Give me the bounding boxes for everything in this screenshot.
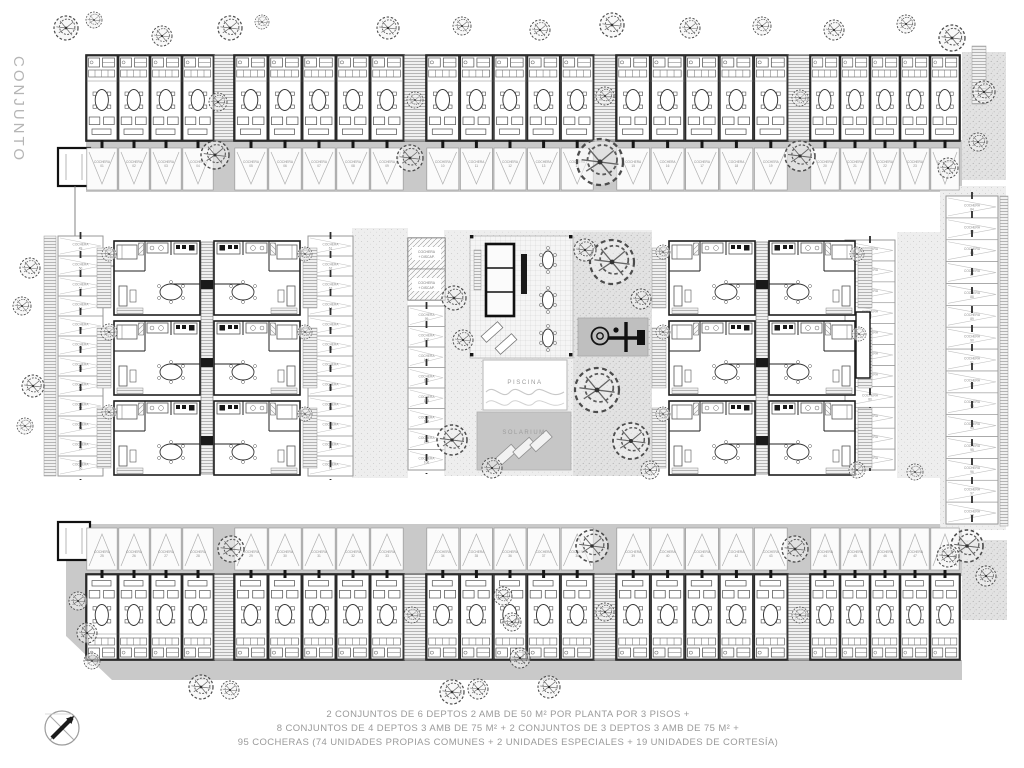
tree-icon xyxy=(201,141,229,169)
stall-bollard xyxy=(542,570,545,578)
apartment-unit xyxy=(269,56,302,141)
stall-bollard xyxy=(250,570,253,578)
stall-bollard xyxy=(475,140,478,148)
tree-icon xyxy=(440,680,464,704)
stall-bollard xyxy=(824,140,827,148)
apartment-unit xyxy=(811,575,840,660)
tree-icon xyxy=(596,87,614,105)
stall-bollard xyxy=(284,570,287,578)
stall-number: 20 xyxy=(823,164,827,168)
driveway-left xyxy=(352,228,408,478)
apartment-unit xyxy=(183,56,214,141)
stall-bollard xyxy=(944,140,947,148)
stall-bollard xyxy=(318,570,321,578)
apartment-unit xyxy=(841,575,870,660)
tree-icon xyxy=(600,13,624,37)
apartment-unit xyxy=(235,575,268,660)
caption-line-3: 95 COCHERAS (74 UNIDADES PROPIAS COMUNES… xyxy=(238,737,778,748)
apartment-module xyxy=(769,401,855,475)
stair-strip xyxy=(214,574,234,660)
stall-number: 39 xyxy=(631,554,635,558)
apartment-unit xyxy=(754,56,787,141)
tree-icon xyxy=(907,464,923,480)
stall-number: 40 xyxy=(666,554,670,558)
apartment-unit xyxy=(901,575,930,660)
tree-icon xyxy=(850,247,864,261)
stall-bollard xyxy=(441,570,444,578)
stall-number: 90 xyxy=(970,339,974,343)
tree-icon xyxy=(255,15,269,29)
corridor-landing xyxy=(201,358,213,367)
tree-icon xyxy=(298,247,312,261)
stall-number: 42 xyxy=(735,554,739,558)
stall-bollard xyxy=(165,140,168,148)
stall-number: 41 xyxy=(700,554,704,558)
stall-bollard xyxy=(632,140,635,148)
tree-icon xyxy=(575,368,619,412)
apartment-unit xyxy=(371,56,404,141)
apartment-unit xyxy=(754,575,787,660)
tree-icon xyxy=(407,92,423,108)
stall-bollard xyxy=(197,570,200,578)
caption-line-2: 8 CONJUNTOS DE 4 DEPTOS 3 AMB DE 75 M² +… xyxy=(277,723,740,734)
stall-number: 02 xyxy=(132,164,136,168)
stall-number: 17 xyxy=(700,164,704,168)
tree-icon xyxy=(102,405,116,419)
deck-post xyxy=(569,353,572,356)
stall-bollard xyxy=(914,140,917,148)
stall-number: 21 xyxy=(853,164,857,168)
pergola-strip xyxy=(44,236,56,476)
apartment-unit xyxy=(460,575,492,660)
tree-icon xyxy=(973,81,995,103)
tree-icon xyxy=(782,536,808,562)
apartment-unit xyxy=(811,56,840,141)
tree-icon xyxy=(852,327,866,341)
apartment-module xyxy=(214,321,300,395)
stall-number: 44 xyxy=(823,554,827,558)
apartment-extension xyxy=(856,312,870,378)
stall-number: 37 xyxy=(542,554,546,558)
apartment-unit xyxy=(87,575,118,660)
stall-number: 43 xyxy=(769,554,773,558)
apartment-unit xyxy=(119,56,150,141)
stall-bollard xyxy=(197,140,200,148)
tree-icon xyxy=(437,425,467,455)
stall-number: 95 xyxy=(970,448,974,452)
tree-icon xyxy=(453,17,471,35)
stall-number: 30 xyxy=(283,554,287,558)
apartment-unit xyxy=(617,575,650,660)
caption-line-1: 2 CONJUNTOS DE 6 DEPTOS 2 AMB DE 50 M² P… xyxy=(326,709,689,720)
apartment-module xyxy=(114,401,200,475)
apartment-unit xyxy=(617,56,650,141)
apartment-unit xyxy=(427,56,459,141)
apartment-unit xyxy=(841,56,870,141)
stall-number: 89 xyxy=(970,317,974,321)
tree-icon xyxy=(577,139,623,185)
tree-icon xyxy=(468,679,488,699)
tree-icon xyxy=(849,462,865,478)
apartment-unit xyxy=(337,56,370,141)
tree-icon xyxy=(397,145,423,171)
tree-icon xyxy=(596,603,614,621)
apartment-module xyxy=(214,241,300,315)
stall-bollard xyxy=(854,570,857,578)
stall-number: 49 xyxy=(79,247,83,251)
stall-number: 47 xyxy=(913,554,917,558)
stall-number: 45 xyxy=(853,554,857,558)
tree-icon xyxy=(897,15,915,33)
tree-icon xyxy=(792,607,808,623)
tree-icon xyxy=(503,613,521,631)
patio-table xyxy=(543,251,554,269)
apartment-unit xyxy=(686,575,719,660)
stall-bollard xyxy=(133,570,136,578)
stall-bollard xyxy=(475,570,478,578)
deck-post xyxy=(470,235,473,238)
tree-icon xyxy=(453,330,473,350)
corridor-landing xyxy=(201,436,213,445)
stall-number: 12 xyxy=(508,164,512,168)
apartment-unit xyxy=(561,56,593,141)
stall-number: 05 xyxy=(249,164,253,168)
tree-icon xyxy=(631,289,651,309)
stall-bollard xyxy=(666,570,669,578)
stall-number: 10 xyxy=(441,164,445,168)
special-stall-label: COCHERA xyxy=(418,250,436,254)
stall-bollard xyxy=(884,140,887,148)
stall-bollard xyxy=(576,140,579,148)
tree-icon xyxy=(218,536,244,562)
patio-table xyxy=(543,329,554,347)
apartment-module xyxy=(214,401,300,475)
tree-icon xyxy=(377,17,399,39)
tree-icon xyxy=(13,297,31,315)
site-plan: COCHERA01COCHERA02COCHERA03COCHERA04COCH… xyxy=(0,0,1024,768)
tree-icon xyxy=(482,458,502,478)
corridor-landing xyxy=(756,280,768,289)
stall-bollard xyxy=(441,140,444,148)
stall-number: 96 xyxy=(970,470,974,474)
site-title-vertical: CONJUNTO xyxy=(10,56,27,163)
tree-icon xyxy=(218,16,242,40)
tree-icon xyxy=(680,18,700,38)
stall-bollard xyxy=(576,570,579,578)
stall-bollard xyxy=(386,570,389,578)
stall-number: 34 xyxy=(441,554,445,558)
stall-bollard xyxy=(352,140,355,148)
stall-bollard xyxy=(509,140,512,148)
tree-icon xyxy=(442,286,466,310)
apartment-unit xyxy=(183,575,214,660)
stall-number: 27 xyxy=(164,554,168,558)
apartment-unit xyxy=(87,56,118,141)
apartment-module xyxy=(769,321,855,395)
tree-icon xyxy=(84,653,100,669)
stall-number: 22 xyxy=(883,164,887,168)
stall-bollard xyxy=(101,570,104,578)
stall-number: 19 xyxy=(769,164,773,168)
stall-number: 18 xyxy=(735,164,739,168)
pergola-strip xyxy=(858,408,872,468)
stall-number: 23 xyxy=(913,164,917,168)
apartment-unit xyxy=(901,56,930,141)
stall-number: 31 xyxy=(317,554,321,558)
stall-bollard xyxy=(701,140,704,148)
tree-icon xyxy=(785,141,815,171)
stall-number: 09 xyxy=(385,164,389,168)
pool-label: PISCINA xyxy=(507,379,542,386)
tree-icon xyxy=(969,133,987,151)
tree-icon xyxy=(656,245,670,259)
tree-icon xyxy=(753,17,771,35)
stall-bollard xyxy=(735,140,738,148)
tree-icon xyxy=(54,16,78,40)
apartment-unit xyxy=(686,56,719,141)
stall-number: 03 xyxy=(164,164,168,168)
tree-icon xyxy=(792,90,808,106)
tree-icon xyxy=(298,325,312,339)
apartment-unit xyxy=(235,56,268,141)
stall-bollard xyxy=(824,570,827,578)
stall-number: 04 xyxy=(196,164,200,168)
apartment-unit xyxy=(337,575,370,660)
tree-icon xyxy=(17,418,33,434)
stall-number: 25 xyxy=(100,554,104,558)
sum-building xyxy=(486,244,514,316)
stall-number: 84 xyxy=(970,207,974,211)
deck-post xyxy=(470,353,473,356)
stall-number: 61 xyxy=(329,247,333,251)
stall-number: 11 xyxy=(475,164,479,168)
stall-number: 07 xyxy=(317,164,321,168)
apartment-unit xyxy=(871,575,900,660)
guard-box xyxy=(58,522,90,560)
special-stall-label: + DISCAP. xyxy=(418,255,434,259)
tree-icon xyxy=(298,407,312,421)
tree-icon xyxy=(656,407,670,421)
tree-icon xyxy=(494,587,512,605)
stall-bollard xyxy=(884,570,887,578)
apartment-unit xyxy=(460,56,492,141)
stall-bollard xyxy=(701,570,704,578)
apartment-unit xyxy=(561,575,593,660)
stall-bollard xyxy=(914,570,917,578)
tree-icon xyxy=(510,648,530,668)
apartment-unit xyxy=(528,575,560,660)
play-slide xyxy=(637,330,645,345)
tree-icon xyxy=(538,676,560,698)
apartment-unit xyxy=(651,575,684,660)
apartment-unit xyxy=(931,56,960,141)
stall-bollard xyxy=(632,570,635,578)
tree-icon xyxy=(152,26,172,46)
tree-icon xyxy=(976,566,996,586)
stall-number: 01 xyxy=(100,164,104,168)
tree-icon xyxy=(189,675,213,699)
stall-number: 26 xyxy=(132,554,136,558)
apartment-module xyxy=(669,321,755,395)
play-detail xyxy=(613,327,618,332)
stall-number: 72 xyxy=(329,467,333,471)
stall-bollard xyxy=(284,140,287,148)
stall-bollard xyxy=(318,140,321,148)
apartment-unit xyxy=(303,575,336,660)
stall-number: 99 xyxy=(425,317,429,321)
corridor-landing xyxy=(756,436,768,445)
apartment-unit xyxy=(119,575,150,660)
guard-box xyxy=(58,148,90,186)
driveway-right xyxy=(897,232,943,478)
apartment-unit xyxy=(427,575,459,660)
stall-number: 15 xyxy=(631,164,635,168)
tree-icon xyxy=(613,423,649,459)
stall-number: 88 xyxy=(970,295,974,299)
stall-number: 32 xyxy=(351,554,355,558)
stall-number: 60 xyxy=(79,467,83,471)
apartment-module xyxy=(669,401,755,475)
corridor-landing xyxy=(756,358,768,367)
stall-bollard xyxy=(165,570,168,578)
apartment-module xyxy=(114,241,200,315)
stall-bollard xyxy=(854,140,857,148)
apartment-unit xyxy=(494,56,526,141)
deck-bench xyxy=(474,250,481,290)
tree-icon xyxy=(574,239,596,261)
corridor-landing xyxy=(201,280,213,289)
apartment-unit xyxy=(720,56,753,141)
apartment-unit xyxy=(528,56,560,141)
tree-icon xyxy=(530,20,550,40)
tree-icon xyxy=(939,25,965,51)
stall-number: 29 xyxy=(249,554,253,558)
north-arrow-icon xyxy=(45,711,79,745)
tree-icon xyxy=(22,375,44,397)
stall-bollard xyxy=(666,140,669,148)
stall-number: 16 xyxy=(666,164,670,168)
stall-bollard xyxy=(944,570,947,578)
tree-icon xyxy=(656,325,670,339)
tree-icon xyxy=(86,12,102,28)
tree-icon xyxy=(590,240,634,284)
bar-counter xyxy=(521,254,527,294)
apartment-unit xyxy=(151,575,182,660)
tree-icon xyxy=(404,607,420,623)
stall-bollard xyxy=(542,140,545,148)
apartment-unit xyxy=(303,56,336,141)
stall-number: 62 xyxy=(329,267,333,271)
special-stall-label: + DISCAP. xyxy=(418,286,434,290)
tree-icon xyxy=(937,545,959,567)
stall-bollard xyxy=(133,140,136,148)
apartment-unit xyxy=(931,575,960,660)
apartment-module xyxy=(669,241,755,315)
stall-number: 13 xyxy=(542,164,546,168)
pergola-strip xyxy=(1000,196,1008,526)
stall-bollard xyxy=(101,140,104,148)
tree-icon xyxy=(101,324,117,340)
deck-post xyxy=(569,235,572,238)
tree-icon xyxy=(77,623,97,643)
apartment-unit xyxy=(371,575,404,660)
stall-bollard xyxy=(352,570,355,578)
stall-bollard xyxy=(386,140,389,148)
stall-number: 80 xyxy=(868,397,872,401)
tree-icon xyxy=(641,461,659,479)
tree-icon xyxy=(209,93,227,111)
stall-bollard xyxy=(769,140,772,148)
stall-number: 50 xyxy=(79,267,83,271)
apartment-unit xyxy=(651,56,684,141)
tree-icon xyxy=(221,681,239,699)
apartment-module xyxy=(114,321,200,395)
stall-number: 06 xyxy=(283,164,287,168)
stall-bollard xyxy=(735,570,738,578)
tree-icon xyxy=(102,247,116,261)
tree-icon xyxy=(938,158,958,178)
tree-icon xyxy=(69,592,87,610)
tree-icon xyxy=(20,258,40,278)
stall-number: 28 xyxy=(196,554,200,558)
stall-bollard xyxy=(769,570,772,578)
apartment-module xyxy=(769,241,855,315)
tree-icon xyxy=(576,530,608,562)
patio-table xyxy=(543,291,554,309)
solarium-label: SOLARIUM xyxy=(502,430,545,436)
special-stall-label: COCHERA xyxy=(418,281,436,285)
tree-icon xyxy=(824,20,844,40)
stall-number: 46 xyxy=(883,554,887,558)
stall-number: 36 xyxy=(508,554,512,558)
stall-number: 08 xyxy=(351,164,355,168)
apartment-unit xyxy=(720,575,753,660)
apartment-unit xyxy=(151,56,182,141)
stall-bollard xyxy=(509,570,512,578)
stall-number: 97 xyxy=(970,492,974,496)
stall-bollard xyxy=(250,140,253,148)
stall-number: 35 xyxy=(475,554,479,558)
apartment-unit xyxy=(871,56,900,141)
stall-number: 33 xyxy=(385,554,389,558)
apartment-unit xyxy=(269,575,302,660)
